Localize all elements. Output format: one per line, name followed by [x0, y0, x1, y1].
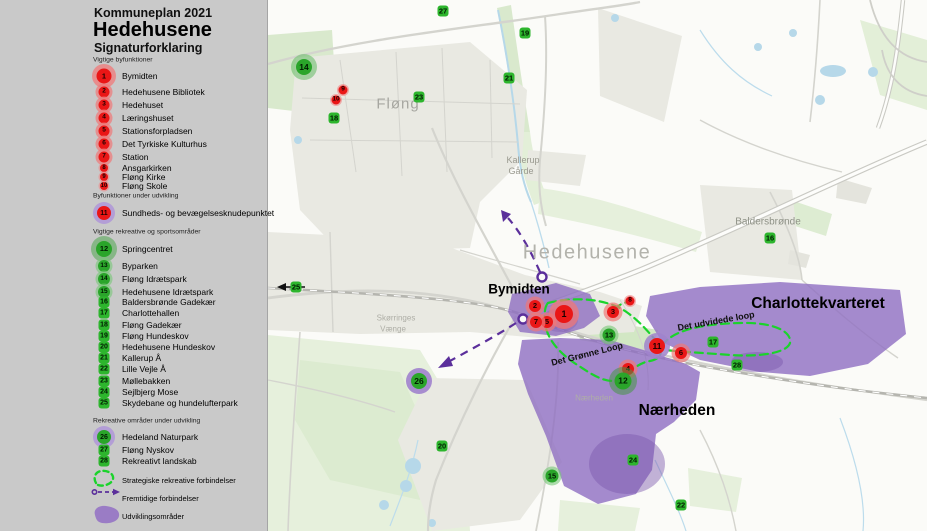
legend-symbol-label: Fremtidige forbindelser	[122, 494, 199, 503]
legend-section-header: Byfunktioner under udvikling	[93, 193, 178, 200]
purple-area-icon	[91, 503, 121, 525]
legend-panel: Kommuneplan 2021 Hedehusene Signaturfork…	[0, 0, 268, 531]
legend-item-label: Fløng Skole	[122, 181, 167, 191]
legend-symbol-label: Udviklingsområder	[122, 512, 184, 521]
legend-marker-11-icon: 11	[91, 200, 117, 226]
legend-item-label: Skydebane og hundelufterpark	[122, 398, 238, 408]
legend-symbol-label: Strategiske rekreative forbindelser	[122, 476, 236, 485]
purple-dashed-arrow-icon	[91, 486, 121, 498]
legend-section-header: Vigtige rekreative og sportsområder	[93, 229, 201, 236]
legend-item-11: 11Sundheds- og bevægelsesknudepunktet	[91, 200, 274, 226]
legend-rows: Vigtige byfunktioner1Bymidten2Hedehusene…	[0, 0, 267, 531]
legend-item-25: 25Skydebane og hundelufterpark	[91, 390, 238, 416]
legend-item-label: Sundheds- og bevægelsesknudepunktet	[122, 208, 274, 218]
kommuneplan-2021-hedehusene: FløngKallerupGårdeHedehuseneBaldersbrønd…	[0, 0, 927, 531]
legend-marker-25-icon: 25	[91, 390, 117, 416]
area-purple-swatch	[91, 503, 117, 529]
future-connection-node-1	[538, 273, 547, 282]
legend-symbol-area-purple: Udviklingsområder	[91, 503, 184, 529]
legend-item-label: Rekreativt landskab	[122, 456, 197, 466]
